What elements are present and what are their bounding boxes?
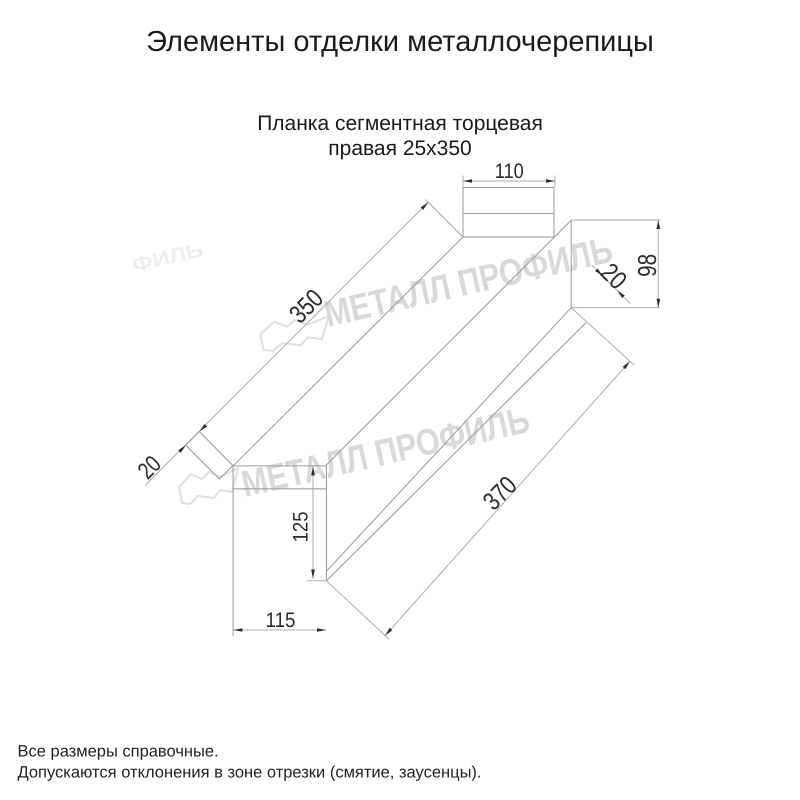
svg-text:98: 98 (632, 254, 662, 277)
svg-text:Планка сегментная торцевая: Планка сегментная торцевая (257, 112, 543, 135)
svg-text:Все размеры справочные.: Все размеры справочные. (18, 743, 219, 761)
svg-text:Элементы отделки металлочерепи: Элементы отделки металлочерепицы (146, 26, 654, 58)
svg-text:115: 115 (266, 609, 296, 632)
svg-text:110: 110 (495, 160, 524, 183)
svg-text:правая 25х350: правая 25х350 (328, 137, 471, 160)
svg-text:Допускаются отклонения в зоне: Допускаются отклонения в зоне отрезки (с… (18, 764, 482, 782)
svg-text:125: 125 (289, 511, 312, 542)
